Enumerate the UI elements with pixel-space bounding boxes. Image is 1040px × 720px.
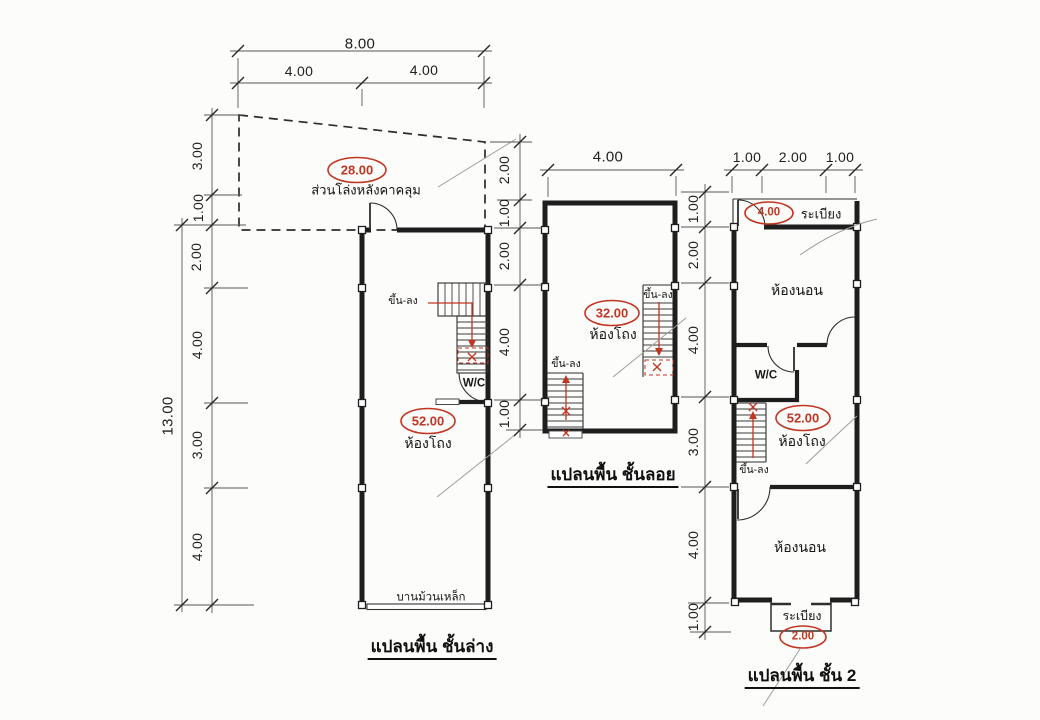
dim-second-top-1: 1.00: [733, 150, 761, 164]
dim-top-total: 8.00: [345, 37, 375, 52]
ground-plan-title: แปลนพื้น ชั้นล่าง: [368, 638, 497, 660]
second-hall-label: ห้องโถง: [778, 434, 825, 448]
bedroom1-door-arc: [827, 317, 855, 345]
dim-left-total: 13.00: [161, 396, 176, 435]
ground-hall-label: ห้องโถง: [404, 436, 451, 450]
second-plan-title: แปลนพื้น ชั้น 2: [745, 667, 860, 689]
dim-right-chain-3: 4.00: [686, 326, 700, 354]
balcony-bottom-value: 2.00: [792, 631, 814, 643]
bedroom-back-label: ห้องนอน: [774, 540, 826, 554]
mezz-hall-label: ห้องโถง: [589, 327, 636, 341]
dim-left-chain-1: 3.00: [190, 142, 204, 170]
dim-second-top-2: 2.00: [779, 150, 807, 164]
rolling-shutter: [367, 604, 486, 610]
mezz-hall-value: 32.00: [596, 307, 629, 320]
hall-door-arc: [737, 487, 770, 520]
ground-stair-label: ขึ้น-ลง: [388, 296, 417, 307]
mezz-stair-right-label: ขึ้น-ลง: [643, 290, 672, 301]
balcony-bottom-label: ระเบียง: [782, 610, 821, 623]
dim-mezzanine-top: 4.00: [593, 150, 623, 165]
plan-linework: [0, 0, 1040, 720]
second-hall-value: 52.00: [787, 412, 820, 425]
dim-top-half-1: 4.00: [285, 64, 313, 78]
dim-right-chain-4: 3.00: [686, 428, 700, 456]
floor-plan-sheet: 8.00 4.00 4.00 13.00 3.00 1.00 2.00 4.00…: [0, 0, 1040, 720]
balcony-top-label: ระเบียง: [801, 208, 842, 221]
dim-left-chain-6: 4.00: [190, 533, 204, 561]
bedroom-front-label: ห้องนอน: [771, 283, 823, 297]
dim-right-chain-1: 1.00: [686, 195, 700, 223]
dim-left-chain-2: 1.00: [191, 194, 205, 222]
wc-door-arc: [768, 346, 794, 372]
dim-mid-chain-3: 2.00: [497, 242, 511, 270]
dim-left-chain-5: 3.00: [190, 431, 204, 459]
dim-left-chain-3: 2.00: [189, 243, 203, 271]
second-stair-label: ขึ้น-ลง: [739, 465, 768, 476]
dim-right-chain-6: 1.00: [686, 603, 700, 631]
shutter-label: บานม้วนเหล็ก: [396, 592, 465, 604]
ground-entry-door-arc: [370, 203, 397, 230]
dim-right-chain-5: 4.00: [686, 531, 700, 559]
dim-second-top-3: 1.00: [826, 150, 854, 164]
balcony-top-value: 4.00: [758, 207, 780, 219]
dim-mid-chain-4: 4.00: [497, 328, 511, 356]
dim-right-chain-2: 2.00: [686, 241, 700, 269]
ground-hall-value: 52.00: [412, 415, 445, 428]
dim-mid-chain-2: 1.00: [497, 199, 511, 227]
open-area-value: 28.00: [341, 164, 374, 177]
mezzanine-plan-title: แปลนพื้น ชั้นลอย: [547, 466, 678, 488]
dim-mid-chain-1: 2.00: [497, 156, 511, 184]
open-area-label: ส่วนโล่งหลังคาคลุม: [311, 184, 421, 197]
dim-top-half-2: 4.00: [410, 63, 438, 77]
dim-left-chain-4: 4.00: [190, 331, 204, 359]
mezz-stair-left-label: ขึ้น-ลง: [551, 359, 580, 370]
dim-mid-chain-5: 1.00: [497, 400, 511, 428]
second-wc-label: W/C: [755, 370, 777, 382]
ground-wc-label: W/C: [463, 378, 485, 390]
